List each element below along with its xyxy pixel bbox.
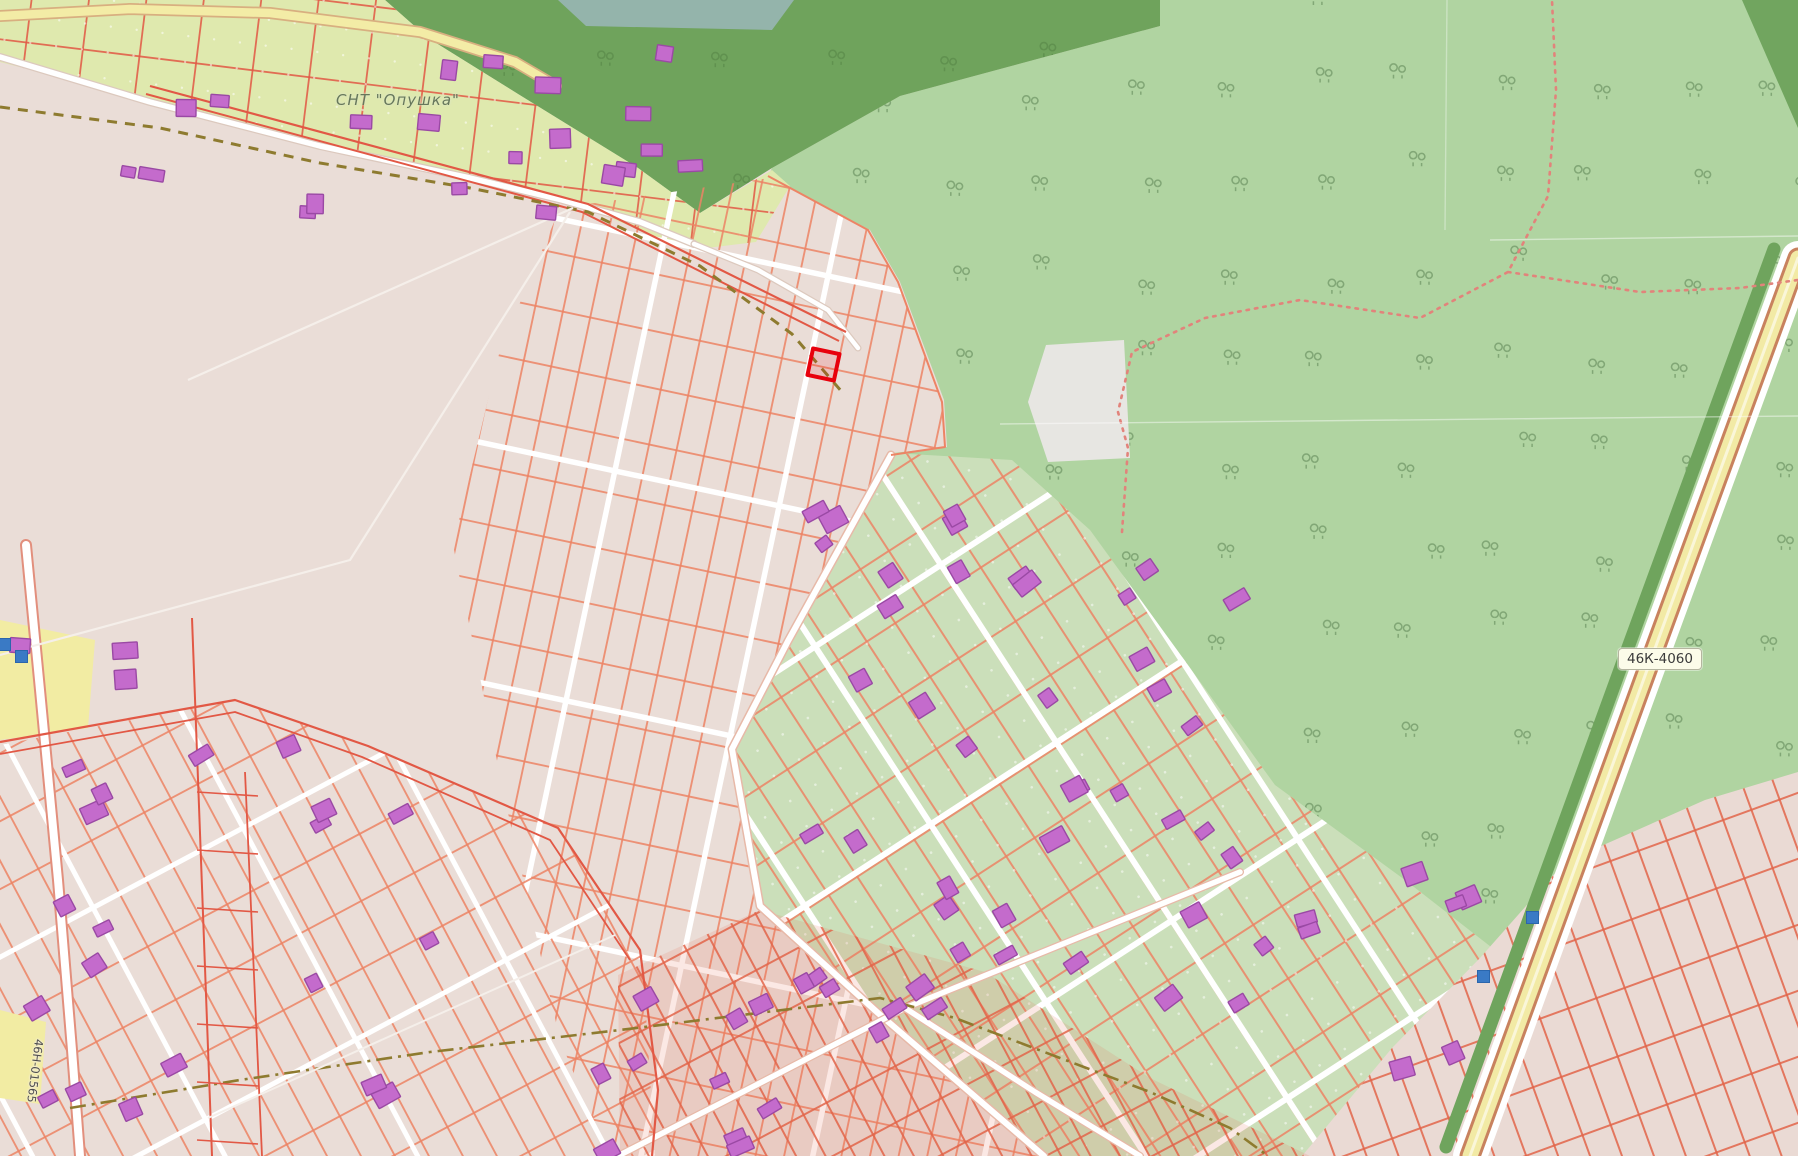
building: [1162, 810, 1186, 830]
building: [307, 194, 324, 214]
building: [1180, 902, 1208, 928]
building: [641, 144, 662, 156]
path-field-path-3: [208, 935, 615, 1118]
building: [1195, 822, 1215, 841]
building: [1154, 984, 1182, 1011]
poi-marker-blue[interactable]: [15, 650, 28, 663]
building: [1401, 861, 1428, 886]
building: [882, 997, 907, 1019]
building: [678, 160, 703, 173]
building: [726, 1008, 748, 1030]
road-main-yellow-road: [1470, 258, 1798, 1156]
building: [626, 107, 651, 121]
building: [1129, 647, 1155, 672]
path-field-path-2: [0, 212, 570, 655]
building: [1039, 826, 1070, 853]
building: [176, 99, 196, 116]
selected-plot-marker[interactable]: [805, 346, 842, 383]
building: [815, 535, 833, 553]
path-long-red-line-1: [192, 618, 212, 1156]
building: [1228, 993, 1249, 1013]
building: [878, 562, 903, 588]
building: [633, 986, 659, 1011]
building: [112, 642, 138, 660]
path-forest-edge-line: [768, 176, 945, 455]
building: [120, 166, 136, 179]
building: [1038, 688, 1058, 709]
building: [452, 183, 467, 195]
building: [992, 903, 1016, 928]
building: [509, 152, 522, 164]
building: [23, 996, 50, 1022]
map-linework: [0, 0, 1798, 1156]
path-field-path-1: [188, 208, 573, 380]
building: [417, 114, 440, 132]
road-settlement-edge-road: [732, 455, 1044, 1156]
map-canvas[interactable]: СНТ "Опушка" 46К-4060 46Н-01565: [0, 0, 1798, 1156]
poi-marker-blue[interactable]: [0, 638, 11, 651]
building: [1254, 936, 1274, 956]
building: [800, 824, 824, 844]
building: [1147, 679, 1172, 702]
building: [627, 1053, 647, 1071]
buildings-layer: [10, 45, 1482, 1156]
road-main-road-treeline: [1446, 249, 1774, 1147]
building: [877, 594, 903, 618]
building: [420, 932, 439, 951]
path-bl-boundary-inner: [0, 712, 630, 960]
building: [1063, 951, 1089, 974]
path-faint-tile-line-2: [1490, 236, 1798, 240]
building: [138, 167, 165, 183]
building: [311, 798, 337, 822]
building: [535, 77, 561, 94]
building: [1223, 588, 1250, 611]
building: [93, 920, 114, 938]
building: [1110, 784, 1129, 802]
poi-marker-blue[interactable]: [1526, 911, 1539, 924]
road-top-yellow-road: [0, 9, 556, 86]
building: [388, 803, 413, 824]
building: [591, 1063, 611, 1085]
road-nw-white-road-2: [694, 244, 858, 348]
building: [1221, 846, 1243, 869]
building: [188, 744, 214, 766]
building: [601, 164, 625, 186]
building: [1441, 1041, 1465, 1066]
poi-marker-blue[interactable]: [1477, 970, 1490, 983]
building: [1181, 716, 1203, 736]
building: [710, 1072, 730, 1089]
building: [593, 1139, 620, 1156]
building: [114, 669, 137, 690]
building: [909, 692, 936, 719]
building: [440, 60, 457, 81]
building: [937, 876, 959, 900]
building: [62, 759, 86, 777]
building: [1118, 588, 1136, 606]
building: [950, 942, 971, 963]
path-faint-tile-line-3: [1445, 0, 1447, 230]
building: [757, 1098, 782, 1119]
building: [844, 829, 867, 853]
building: [655, 45, 673, 63]
building: [549, 129, 570, 149]
building: [276, 735, 301, 759]
building: [350, 115, 372, 129]
building: [65, 1082, 86, 1102]
road-left-road: [26, 545, 80, 1156]
building: [1389, 1056, 1415, 1081]
building: [947, 560, 970, 584]
building: [82, 953, 108, 978]
building: [536, 205, 557, 220]
building: [483, 55, 503, 69]
path-forest-footpath-1: [1118, 0, 1556, 532]
building: [304, 973, 323, 993]
building: [161, 1053, 188, 1077]
building: [848, 668, 872, 692]
building: [1136, 558, 1159, 580]
building: [37, 1089, 58, 1108]
road-settlement-edge-road: [732, 455, 1044, 1156]
building: [210, 94, 229, 107]
road-nw-white-road-2: [694, 244, 858, 348]
building: [119, 1097, 143, 1122]
building: [956, 736, 978, 758]
